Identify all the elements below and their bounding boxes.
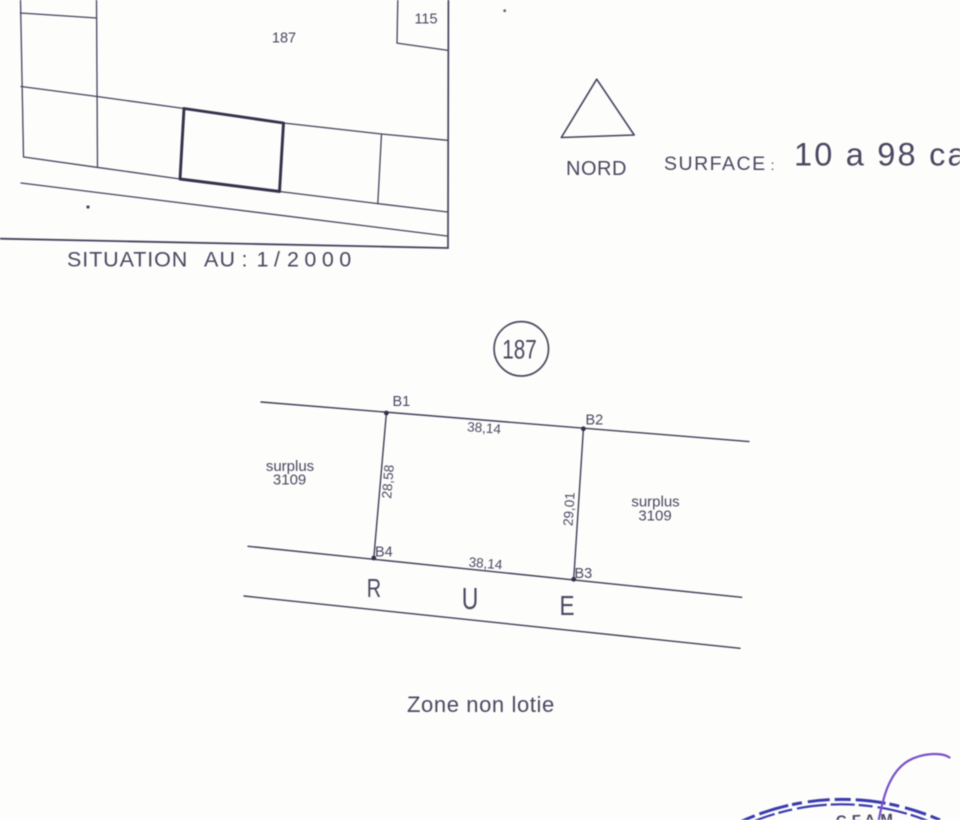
- svg-text:115: 115: [414, 12, 437, 28]
- svg-text:B3: B3: [575, 566, 593, 582]
- svg-text:SITUATIONAU:1/2000: SITUATIONAU:1/2000: [67, 248, 357, 272]
- svg-text:3109: 3109: [638, 507, 671, 524]
- svg-text:B1: B1: [393, 394, 411, 410]
- svg-text:28,58: 28,58: [379, 464, 397, 499]
- svg-text:SURFACE:: SURFACE:: [664, 153, 776, 175]
- svg-text:U: U: [462, 581, 479, 616]
- svg-text:B4: B4: [375, 545, 393, 561]
- svg-text:B2: B2: [586, 413, 604, 429]
- svg-text:187: 187: [272, 31, 296, 47]
- svg-text:NORD: NORD: [566, 158, 627, 180]
- svg-text:C.F.A.M: C.F.A.M: [836, 811, 894, 820]
- svg-text:Zone non lotie: Zone non lotie: [407, 692, 555, 717]
- svg-text:29,01: 29,01: [561, 492, 578, 527]
- svg-text:38,14: 38,14: [468, 555, 503, 573]
- svg-text:3109: 3109: [273, 471, 306, 488]
- svg-text:E: E: [560, 591, 575, 622]
- svg-text:38,14: 38,14: [467, 419, 502, 437]
- svg-text:10 a 98 ca: 10 a 98 ca: [794, 137, 960, 173]
- svg-text:187: 187: [502, 335, 536, 365]
- svg-text:R: R: [367, 574, 381, 603]
